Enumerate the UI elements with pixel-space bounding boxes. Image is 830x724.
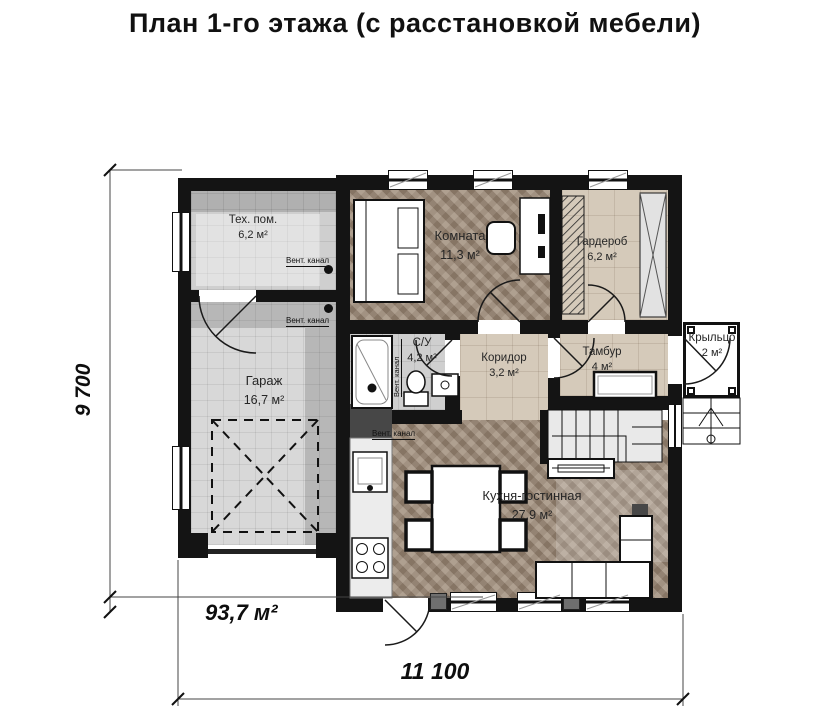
room-label-bathroom: С/У 4,2 м² — [400, 337, 444, 365]
room-area: 27,9 м² — [512, 508, 553, 522]
dimension-side: 9 700 — [72, 340, 96, 440]
wall-bedroom-wardrobe — [550, 190, 562, 320]
window-kitchen-1 — [450, 592, 497, 612]
room-label-vestibule: Тамбур 4 м² — [576, 346, 628, 374]
window-garage — [172, 446, 190, 510]
window-tech-room — [172, 212, 190, 272]
vent-shaft-living — [632, 504, 648, 524]
room-area: 4 м² — [592, 361, 612, 374]
room-label-kitchen: Кухня-гостинная 27,9 м² — [462, 489, 602, 522]
door-opening-wardrobe — [588, 320, 625, 334]
room-area: 11,3 м² — [440, 248, 480, 262]
room-area: 3,2 м² — [489, 367, 519, 380]
vent-label-garage: Вент. канал — [286, 316, 329, 327]
room-name: Гардероб — [577, 236, 628, 249]
room-label-wardrobe: Гардероб 6,2 м² — [572, 236, 632, 264]
wall-exterior-right — [668, 175, 682, 612]
wall-tech-garage — [256, 290, 337, 302]
wall-garage-post-left — [178, 533, 208, 558]
window-kitchen-2 — [517, 592, 562, 612]
porch-post — [687, 387, 695, 395]
wall-exterior-left — [336, 175, 350, 612]
wall-annex-top — [178, 178, 350, 191]
vent-label-kitchen: Вент. канал — [372, 429, 415, 440]
room-name: Коридор — [481, 352, 526, 365]
wall-pier — [563, 593, 580, 610]
vent-dot — [324, 304, 333, 313]
room-label-garage: Гараж 16,7 м² — [228, 374, 300, 407]
room-area: 4,2 м² — [407, 352, 437, 365]
room-name: Гараж — [246, 374, 283, 389]
room-name: Тех. пом. — [229, 214, 277, 227]
room-area: 2 м² — [702, 347, 722, 360]
door-opening-bedroom — [478, 320, 520, 334]
door-opening-entrance — [668, 336, 682, 384]
porch-post — [728, 387, 736, 395]
page-title: План 1-го этажа (с расстановкой мебели) — [0, 8, 830, 39]
room-label-tech: Тех. пом. 6,2 м² — [219, 214, 287, 242]
window-bedroom-1 — [388, 170, 428, 190]
garage-door — [208, 549, 316, 554]
room-area: 6,2 м² — [238, 229, 268, 242]
vent-dot — [324, 265, 333, 274]
room-label-corridor: Коридор 3,2 м² — [474, 352, 534, 380]
floor-shade — [305, 328, 337, 545]
total-area-label: 93,7 м² — [205, 600, 278, 626]
room-label-bedroom: Комната 11,3 м² — [418, 229, 502, 262]
window-kitchen-3 — [585, 592, 630, 612]
floor-shade — [191, 191, 337, 212]
wall-vestibule-bottom — [548, 396, 682, 410]
room-area: 6,2 м² — [587, 251, 617, 264]
floor-plan-page: План 1-го этажа (с расстановкой мебели) — [0, 0, 830, 724]
vent-label-bathroom: Вент. канал — [392, 339, 402, 397]
room-name: Крыльцо — [689, 332, 736, 345]
wall-stairs-left — [540, 410, 548, 464]
dimension-bottom: 11 100 — [355, 658, 515, 685]
room-name: Тамбур — [582, 346, 621, 359]
window-bedroom-2 — [473, 170, 513, 190]
room-name: С/У — [413, 337, 432, 350]
room-area: 16,7 м² — [244, 393, 285, 407]
wall-tech-garage — [191, 290, 199, 302]
door-opening-bathroom — [445, 340, 460, 376]
room-label-porch: Крыльцо 2 м² — [686, 332, 738, 360]
door-opening-vestibule — [548, 338, 560, 378]
porch-steps — [683, 398, 740, 444]
window-stairs — [668, 404, 682, 448]
room-name: Комната — [435, 229, 486, 244]
vent-label-tech: Вент. канал — [286, 256, 329, 267]
window-wardrobe — [588, 170, 628, 190]
door-opening-terrace — [383, 598, 428, 612]
door-opening-tech-garage — [199, 290, 256, 302]
room-name: Кухня-гостинная — [482, 489, 581, 504]
wall-pier — [430, 593, 447, 610]
